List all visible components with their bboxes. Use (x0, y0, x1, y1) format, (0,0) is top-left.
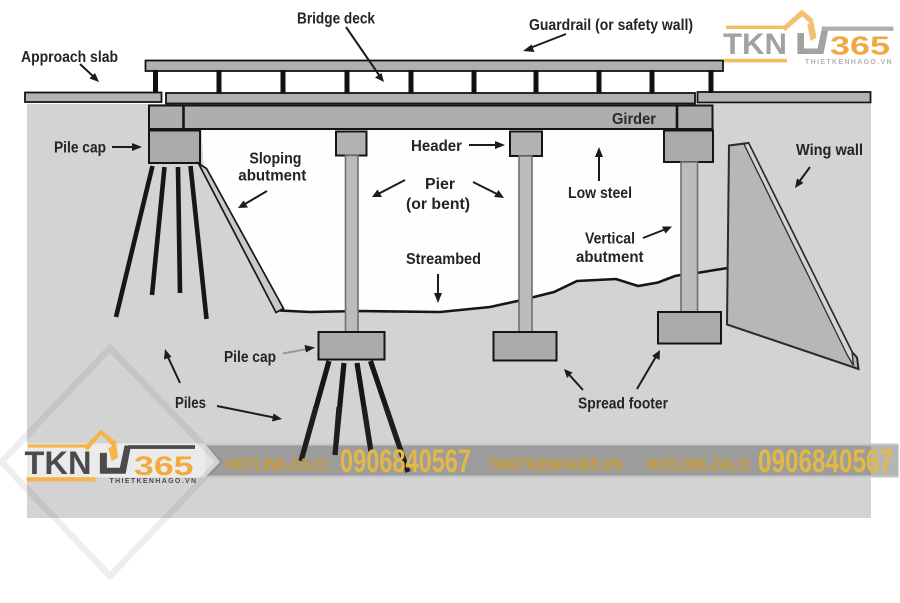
svg-text:Vertical: Vertical (585, 231, 635, 248)
svg-text:THIETKENHAGO.VN: THIETKENHAGO.VN (805, 59, 893, 66)
svg-text:HOTLINE-ZALO:: HOTLINE-ZALO: (226, 455, 332, 474)
svg-text:0906840567: 0906840567 (340, 443, 471, 479)
svg-text:Guardrail (or safety wall): Guardrail (or safety wall) (529, 17, 693, 34)
svg-text:Spread footer: Spread footer (578, 396, 668, 413)
svg-text:Low steel: Low steel (568, 185, 632, 202)
svg-text:Wing wall: Wing wall (796, 142, 863, 159)
svg-text:TKN: TKN (25, 445, 92, 481)
svg-text:THIETKENHA365.VN: THIETKENHA365.VN (488, 455, 622, 474)
svg-text:Streambed: Streambed (406, 251, 481, 268)
svg-text:0906840567: 0906840567 (758, 443, 893, 479)
svg-text:Pier: Pier (425, 176, 455, 193)
svg-text:365: 365 (134, 451, 194, 481)
svg-text:abutment: abutment (576, 249, 644, 266)
svg-text:Bridge deck: Bridge deck (297, 11, 375, 28)
svg-text:TKN: TKN (723, 28, 787, 61)
svg-text:Girder: Girder (612, 111, 656, 128)
svg-text:Approach slab: Approach slab (21, 49, 118, 66)
svg-text:HOTLINE-ZALO:: HOTLINE-ZALO: (647, 455, 753, 474)
svg-text:Pile cap: Pile cap (224, 349, 276, 366)
svg-text:(or bent): (or bent) (406, 196, 470, 213)
svg-text:Pile cap: Pile cap (54, 140, 106, 157)
svg-text:THIETKENHAGO.VN: THIETKENHAGO.VN (110, 478, 198, 485)
svg-text:Header: Header (411, 138, 462, 155)
svg-text:abutment: abutment (238, 168, 307, 185)
svg-text:365: 365 (830, 31, 890, 61)
svg-text:Sloping: Sloping (249, 151, 301, 168)
svg-text:Piles: Piles (175, 395, 206, 412)
